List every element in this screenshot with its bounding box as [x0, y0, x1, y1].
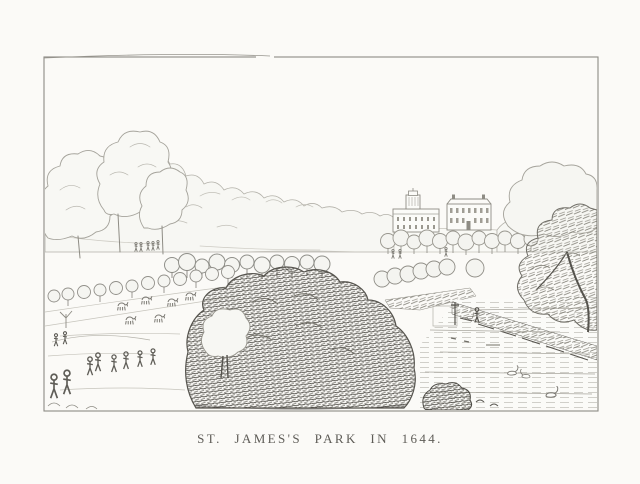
book-page: ST. JAMES'S PARK IN 1644.: [0, 0, 640, 484]
central-tree-clump: [186, 267, 416, 410]
bare-tree: [60, 311, 72, 328]
border-gap: [256, 53, 274, 61]
plate-caption: ST. JAMES'S PARK IN 1644.: [0, 431, 640, 447]
engraving-illustration: [0, 0, 640, 484]
building-house: [447, 195, 491, 231]
building-tower: [406, 188, 420, 209]
